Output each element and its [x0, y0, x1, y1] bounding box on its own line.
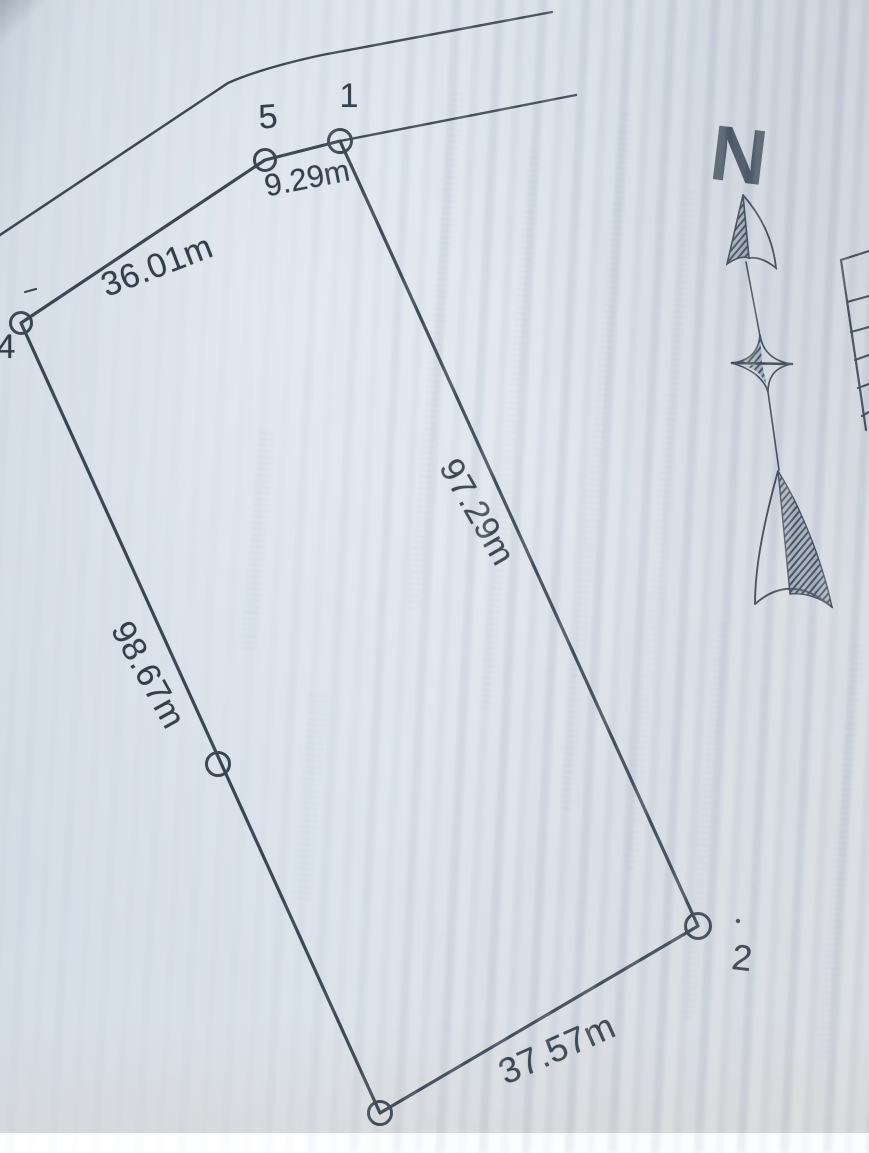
north-arrowhead	[727, 195, 749, 264]
table-fragment	[841, 251, 869, 430]
vertex-label-4: 4	[0, 330, 15, 364]
compass-star	[732, 335, 792, 392]
boundary-extension-line	[340, 95, 576, 141]
vertex-label-5: 5	[257, 99, 278, 134]
survey-sketch-photo: N 5 1 4 2 9.29m 36.01m 97.29m 98.67m 37.…	[0, 0, 869, 1133]
vertex-label-1: 1	[340, 79, 359, 113]
pen-mark	[25, 289, 36, 292]
north-arrow-tail	[755, 471, 832, 607]
north-label: N	[706, 113, 771, 197]
pen-dot	[736, 919, 740, 923]
north-arrow	[727, 195, 832, 607]
